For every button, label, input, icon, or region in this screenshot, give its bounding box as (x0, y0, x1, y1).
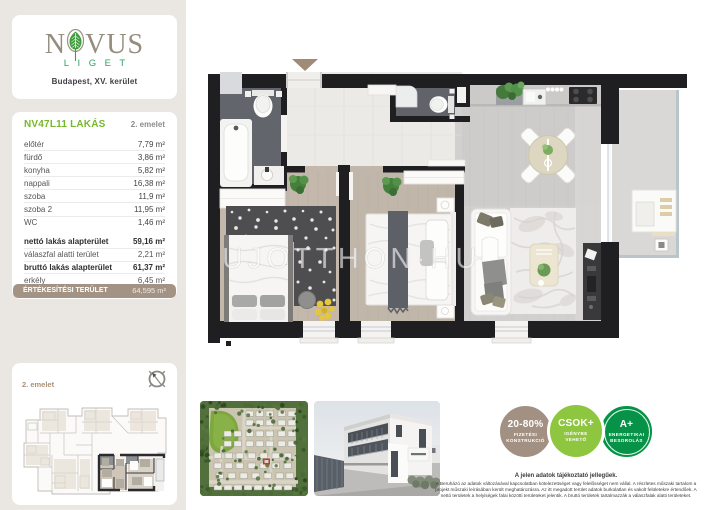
svg-text:UJOTTHON·HU: UJOTTHON·HU (222, 243, 481, 275)
